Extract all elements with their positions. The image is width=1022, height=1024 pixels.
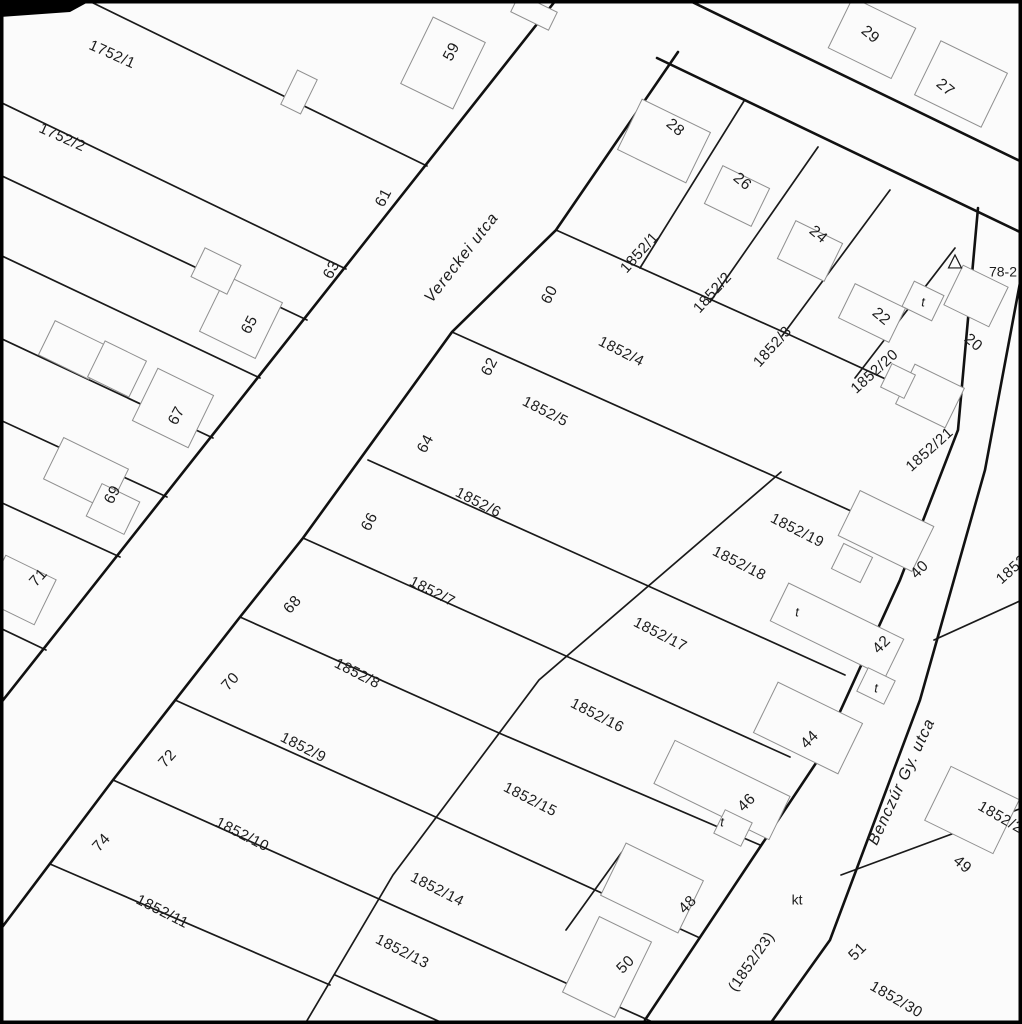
parcel-number-label: 1852 xyxy=(993,551,1022,587)
shed-1752-1 xyxy=(281,70,317,114)
house-number-label: 64 xyxy=(414,432,438,456)
parcel-number-label: 1852/11 xyxy=(133,891,191,932)
parcel-boundary-e-fan-2 xyxy=(368,460,845,675)
house-71 xyxy=(0,555,56,624)
house-number-label: 70 xyxy=(218,669,243,694)
house-48 xyxy=(601,843,704,933)
parcel-number-label: 1852/18 xyxy=(710,543,769,584)
parcel-number-label: 1752/2 xyxy=(36,120,88,155)
annotation-label: kt xyxy=(792,892,803,908)
house-27 xyxy=(915,41,1008,127)
house-number-label: 66 xyxy=(358,510,382,534)
house-number-label: 74 xyxy=(89,830,114,855)
parcel-number-label: 1852/21 xyxy=(903,424,957,475)
house-number-label: 60 xyxy=(538,283,562,307)
house-number-label: 51 xyxy=(845,939,870,964)
cadastral-map-canvas: 1752/11752/21852/11852/21852/31852/41852… xyxy=(0,0,1022,1024)
house-50 xyxy=(563,917,652,1018)
parcel-boundary-e-fan-1 xyxy=(452,332,893,530)
parcel-number-label: 1852/10 xyxy=(213,814,272,855)
annotation-label: 78-2 xyxy=(989,264,1017,280)
street-name-label: Benczúr Gy. utca xyxy=(865,716,939,848)
house-number-label: 62 xyxy=(478,355,502,379)
parcel-boundary-w-1 xyxy=(87,0,427,166)
parcel-number-label: 1852/16 xyxy=(568,695,627,736)
parcel-number-label: 1852/13 xyxy=(373,931,432,972)
house-number-label: 72 xyxy=(155,746,180,771)
map-border-wedge xyxy=(0,0,92,17)
street-name-label: Vereckei utca xyxy=(421,210,502,307)
parcel-number-label: 1852/6 xyxy=(453,484,504,521)
house-number-label: 63 xyxy=(320,258,344,282)
parcel-boundary-w-8 xyxy=(0,628,46,650)
parcel-number-label: 1852/17 xyxy=(631,614,690,655)
house-42 xyxy=(770,583,903,677)
house-28 xyxy=(618,99,711,183)
parcel-number-label: 1852/9 xyxy=(278,729,329,766)
parcel-number-label: 1852/15 xyxy=(501,779,560,820)
house-65 xyxy=(200,276,283,359)
cadastral-map: 1752/11752/21852/11852/21852/31852/41852… xyxy=(0,0,1022,1024)
parcel-number-label: 1852/19 xyxy=(768,510,827,551)
shed-top xyxy=(511,0,558,30)
parcel-number-label: 1852/4 xyxy=(596,333,647,370)
parcel-boundary-e-fan-7 xyxy=(50,864,330,985)
parcel-number-label: (1852/23) xyxy=(725,929,778,995)
parcel-boundary-e-fan-8 xyxy=(335,975,445,1024)
parcel-number-label: 1852/14 xyxy=(408,869,467,910)
house-number-label: 68 xyxy=(280,592,305,617)
house-59 xyxy=(401,17,486,109)
parcel-number-label: 1752/1 xyxy=(86,37,138,72)
parcel-boundary-e-fan-3 xyxy=(303,538,790,757)
house-number-label: 49 xyxy=(950,852,975,877)
parcel-number-label: 1852/7 xyxy=(407,573,458,610)
parcel-number-label: 1852/8 xyxy=(332,655,383,692)
control-point-triangle-icon xyxy=(949,255,962,268)
parcel-number-label: 1852/30 xyxy=(867,978,925,1022)
parcel-number-label: 1852/1 xyxy=(617,229,662,277)
parcel-number-label: 1852/3 xyxy=(750,323,795,371)
parcel-number-label: 1852/5 xyxy=(520,393,571,430)
